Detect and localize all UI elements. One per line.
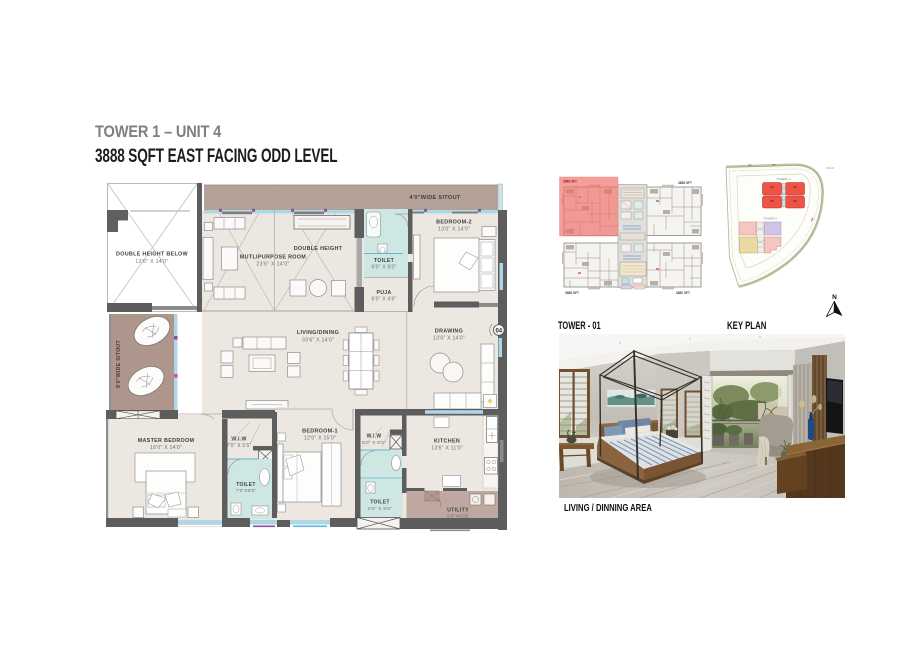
svg-text:6'0" X 5'0": 6'0" X 5'0" — [362, 440, 386, 446]
svg-text:16'0" X 14'0": 16'0" X 14'0" — [150, 445, 182, 451]
svg-text:12'6" X 14'0": 12'6" X 14'0" — [135, 259, 168, 265]
svg-text:KITCHEN: KITCHEN — [434, 439, 460, 445]
svg-text:ROAD: ROAD — [826, 166, 834, 170]
svg-text:DOUBLE HEIGHT BELOW: DOUBLE HEIGHT BELOW — [116, 252, 188, 258]
svg-text:BEDROOM-2: BEDROOM-2 — [436, 220, 472, 226]
svg-text:PUJA: PUJA — [376, 290, 391, 296]
svg-text:04: 04 — [495, 328, 502, 334]
svg-text:MASTER BEDROOM: MASTER BEDROOM — [138, 438, 195, 444]
svg-text:6'0" X 9'0": 6'0" X 9'0" — [372, 265, 397, 271]
svg-text:BEDROOM-1: BEDROOM-1 — [302, 429, 338, 435]
svg-text:N: N — [832, 294, 837, 301]
svg-text:7'0" X 5'6": 7'0" X 5'6" — [227, 443, 252, 449]
svg-text:3880 SFT: 3880 SFT — [676, 291, 690, 295]
svg-text:DOUBLE HEIGHT: DOUBLE HEIGHT — [294, 246, 343, 252]
svg-text:LIVING/DINING: LIVING/DINING — [297, 330, 339, 336]
svg-text:4'0"WIDE SITOUT: 4'0"WIDE SITOUT — [409, 195, 461, 201]
svg-text:DRAWING: DRAWING — [435, 329, 463, 335]
svg-text:TOWER-2: TOWER-2 — [763, 217, 777, 221]
svg-text:3888 SFT: 3888 SFT — [678, 181, 692, 185]
svg-text:W.I.W: W.I.W — [367, 434, 382, 440]
svg-text:W.I.W: W.I.W — [231, 437, 246, 443]
svg-text:13'0" X 14'0": 13'0" X 14'0" — [438, 227, 470, 233]
svg-text:6'0" X 4'6": 6'0" X 4'6" — [372, 297, 397, 303]
svg-text:23'6" X 14'0": 23'6" X 14'0" — [256, 262, 289, 268]
svg-text:TOWER-1: TOWER-1 — [776, 177, 790, 181]
svg-text:12'0" X 15'0": 12'0" X 15'0" — [304, 436, 336, 442]
svg-text:3888 SFT: 3888 SFT — [563, 180, 577, 184]
svg-text:13'0" X 14'0": 13'0" X 14'0" — [433, 336, 465, 342]
svg-text:MUTLIPURPOSE ROOM: MUTLIPURPOSE ROOM — [240, 255, 306, 261]
svg-text:33'6" X 14'0": 33'6" X 14'0" — [302, 338, 334, 344]
svg-text:6'0" X 9'6": 6'0" X 9'6" — [368, 506, 392, 512]
svg-text:TOILET: TOILET — [370, 500, 390, 506]
svg-text:9'0"WIDE SITOUT: 9'0"WIDE SITOUT — [116, 340, 122, 388]
svg-text:7'0"X9'6": 7'0"X9'6" — [236, 488, 256, 493]
svg-text:13'6" X 11'0": 13'6" X 11'0" — [431, 446, 463, 452]
svg-text:3888 SFT: 3888 SFT — [565, 291, 579, 295]
svg-text:UTILITY: UTILITY — [447, 508, 469, 514]
svg-text:TOILET: TOILET — [374, 258, 395, 264]
